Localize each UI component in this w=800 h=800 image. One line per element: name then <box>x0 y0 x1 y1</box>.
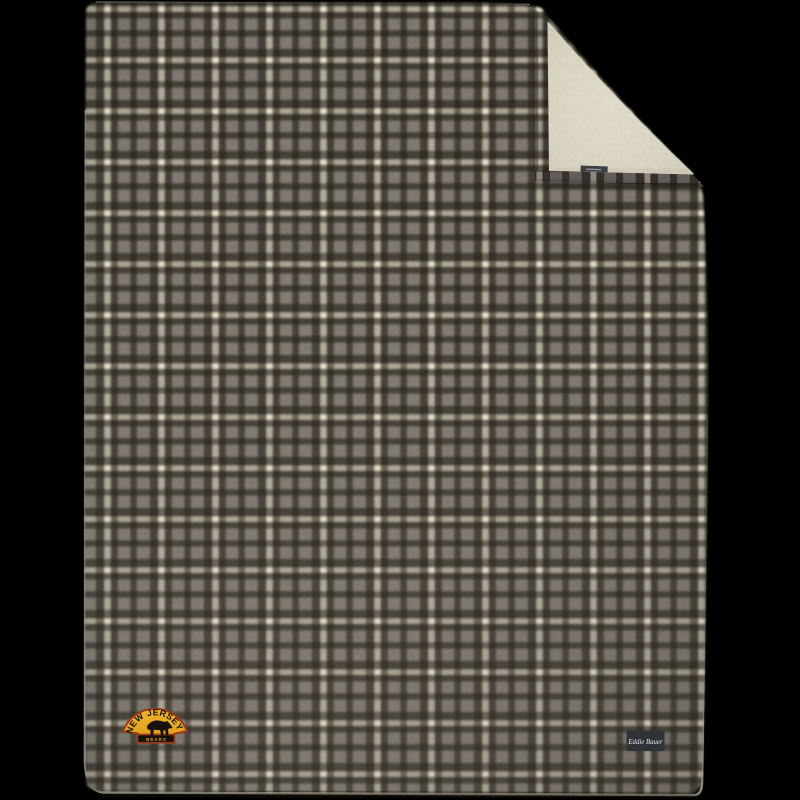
svg-text:BEARS: BEARS <box>146 737 167 742</box>
svg-text:Eddie Bauer: Eddie Bauer <box>627 739 663 746</box>
